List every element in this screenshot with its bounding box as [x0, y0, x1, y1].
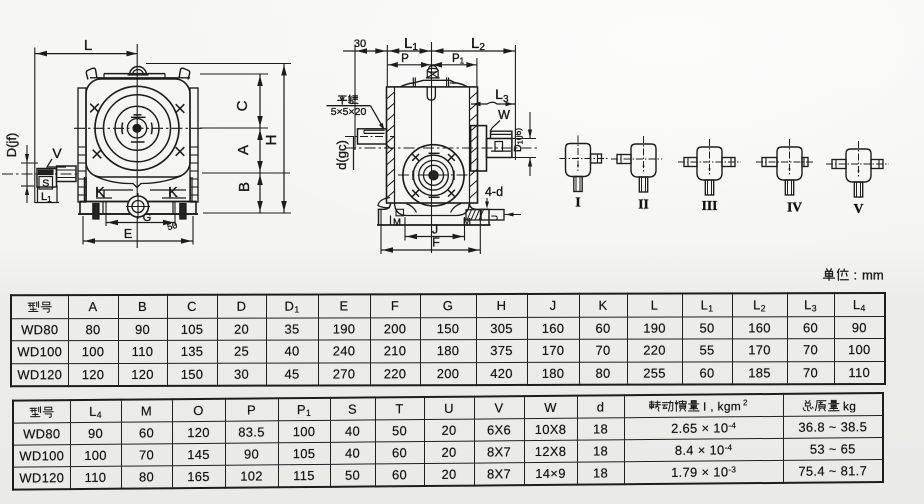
- svg-text:30: 30: [354, 38, 366, 50]
- svg-text:E: E: [124, 227, 132, 241]
- svg-text:P1: P1: [452, 53, 465, 66]
- svg-text:L1: L1: [404, 35, 418, 53]
- svg-text:d(gc): d(gc): [334, 140, 349, 170]
- svg-text:U: U: [490, 215, 500, 221]
- svg-text:I , kgm: I , kgm: [703, 399, 741, 413]
- svg-text:D(jf): D(jf): [4, 133, 19, 158]
- svg-text:W: W: [498, 108, 510, 122]
- svg-text:IV: IV: [787, 200, 802, 215]
- svg-text:V: V: [854, 201, 864, 216]
- svg-text:C: C: [234, 100, 251, 111]
- svg-text:H: H: [263, 135, 280, 146]
- svg-text:I: I: [575, 195, 580, 210]
- svg-text:V: V: [52, 145, 62, 161]
- svg-text:M: M: [393, 217, 401, 228]
- svg-text:III: III: [702, 198, 718, 213]
- svg-text:K: K: [168, 185, 178, 201]
- svg-text:4-d: 4-d: [485, 185, 503, 199]
- svg-text:A: A: [235, 145, 252, 155]
- svg-text:2: 2: [743, 398, 748, 407]
- svg-text:kg: kg: [843, 399, 856, 412]
- svg-text:F: F: [432, 236, 440, 250]
- svg-text:P: P: [401, 53, 409, 65]
- svg-text:D1(j6): D1(j6): [512, 128, 525, 152]
- svg-text:mm: mm: [862, 268, 884, 283]
- svg-text:K: K: [95, 185, 105, 201]
- svg-text:S: S: [42, 178, 49, 190]
- svg-text:5×5×20: 5×5×20: [331, 106, 367, 118]
- svg-text:L2: L2: [471, 35, 485, 53]
- svg-text::: :: [854, 268, 858, 283]
- svg-text:L1: L1: [41, 191, 52, 204]
- svg-text:II: II: [638, 197, 649, 212]
- svg-text:50: 50: [166, 220, 178, 232]
- svg-text:B: B: [236, 182, 253, 192]
- svg-text:L: L: [84, 37, 92, 54]
- svg-text:L: L: [495, 86, 503, 102]
- svg-text:G: G: [143, 212, 152, 224]
- svg-text:J: J: [432, 223, 438, 237]
